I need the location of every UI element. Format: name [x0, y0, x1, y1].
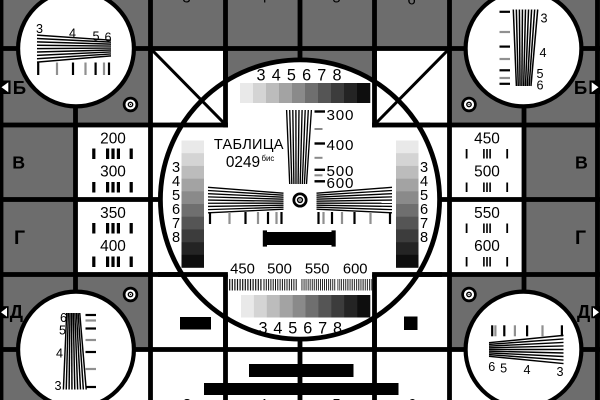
svg-text:600: 600 — [327, 175, 355, 192]
svg-text:6: 6 — [302, 67, 311, 85]
svg-text:4: 4 — [523, 363, 530, 377]
svg-text:450: 450 — [474, 131, 500, 148]
svg-text:Б: Б — [13, 77, 26, 98]
svg-text:3: 3 — [256, 67, 265, 85]
svg-text:Г: Г — [575, 227, 586, 249]
svg-text:5: 5 — [332, 396, 340, 400]
svg-text:ТАБЛИЦА: ТАБЛИЦА — [214, 137, 284, 153]
svg-text:600: 600 — [343, 262, 368, 278]
svg-text:600: 600 — [474, 238, 500, 255]
svg-text:8: 8 — [172, 230, 180, 246]
svg-text:Г: Г — [14, 227, 25, 249]
svg-text:В: В — [575, 153, 588, 173]
svg-text:550: 550 — [474, 205, 500, 222]
svg-text:3: 3 — [556, 365, 563, 379]
svg-text:бис: бис — [262, 154, 275, 163]
svg-text:6: 6 — [407, 0, 415, 9]
svg-text:3: 3 — [36, 22, 43, 36]
svg-text:6: 6 — [488, 360, 495, 374]
svg-text:8: 8 — [332, 67, 341, 85]
svg-text:5: 5 — [92, 30, 99, 44]
svg-text:3: 3 — [54, 379, 61, 393]
svg-text:5: 5 — [288, 320, 297, 338]
svg-text:5: 5 — [332, 0, 340, 7]
svg-text:3: 3 — [258, 320, 267, 338]
svg-text:3: 3 — [540, 12, 547, 26]
svg-text:450: 450 — [230, 262, 255, 278]
svg-text:6: 6 — [408, 396, 416, 400]
svg-text:4: 4 — [69, 27, 76, 41]
svg-text:0249: 0249 — [226, 154, 260, 171]
svg-text:5: 5 — [287, 67, 296, 85]
svg-text:Д: Д — [10, 301, 23, 322]
svg-text:5: 5 — [59, 324, 66, 338]
svg-text:300: 300 — [327, 107, 355, 124]
svg-text:7: 7 — [317, 67, 326, 85]
svg-text:4: 4 — [259, 0, 267, 7]
svg-text:7: 7 — [318, 320, 327, 338]
svg-text:550: 550 — [305, 262, 330, 278]
svg-text:4: 4 — [259, 396, 267, 400]
svg-text:300: 300 — [100, 164, 126, 181]
svg-text:500: 500 — [474, 164, 500, 181]
svg-text:6: 6 — [536, 79, 543, 93]
svg-text:3: 3 — [182, 0, 190, 7]
svg-text:400: 400 — [100, 238, 126, 255]
svg-text:В: В — [12, 153, 25, 173]
svg-text:8: 8 — [333, 320, 342, 338]
svg-text:6: 6 — [104, 31, 111, 45]
svg-text:5: 5 — [500, 362, 507, 376]
svg-text:8: 8 — [420, 230, 428, 246]
svg-text:3: 3 — [183, 396, 191, 400]
svg-text:350: 350 — [100, 205, 126, 222]
svg-text:Б: Б — [574, 77, 587, 98]
svg-text:4: 4 — [272, 67, 281, 85]
svg-text:500: 500 — [267, 262, 292, 278]
svg-text:200: 200 — [100, 131, 126, 148]
svg-text:4: 4 — [273, 320, 282, 338]
svg-text:4: 4 — [56, 347, 63, 361]
svg-text:Д: Д — [577, 301, 590, 322]
svg-text:4: 4 — [539, 46, 546, 60]
svg-text:400: 400 — [327, 137, 355, 154]
svg-text:6: 6 — [303, 320, 312, 338]
